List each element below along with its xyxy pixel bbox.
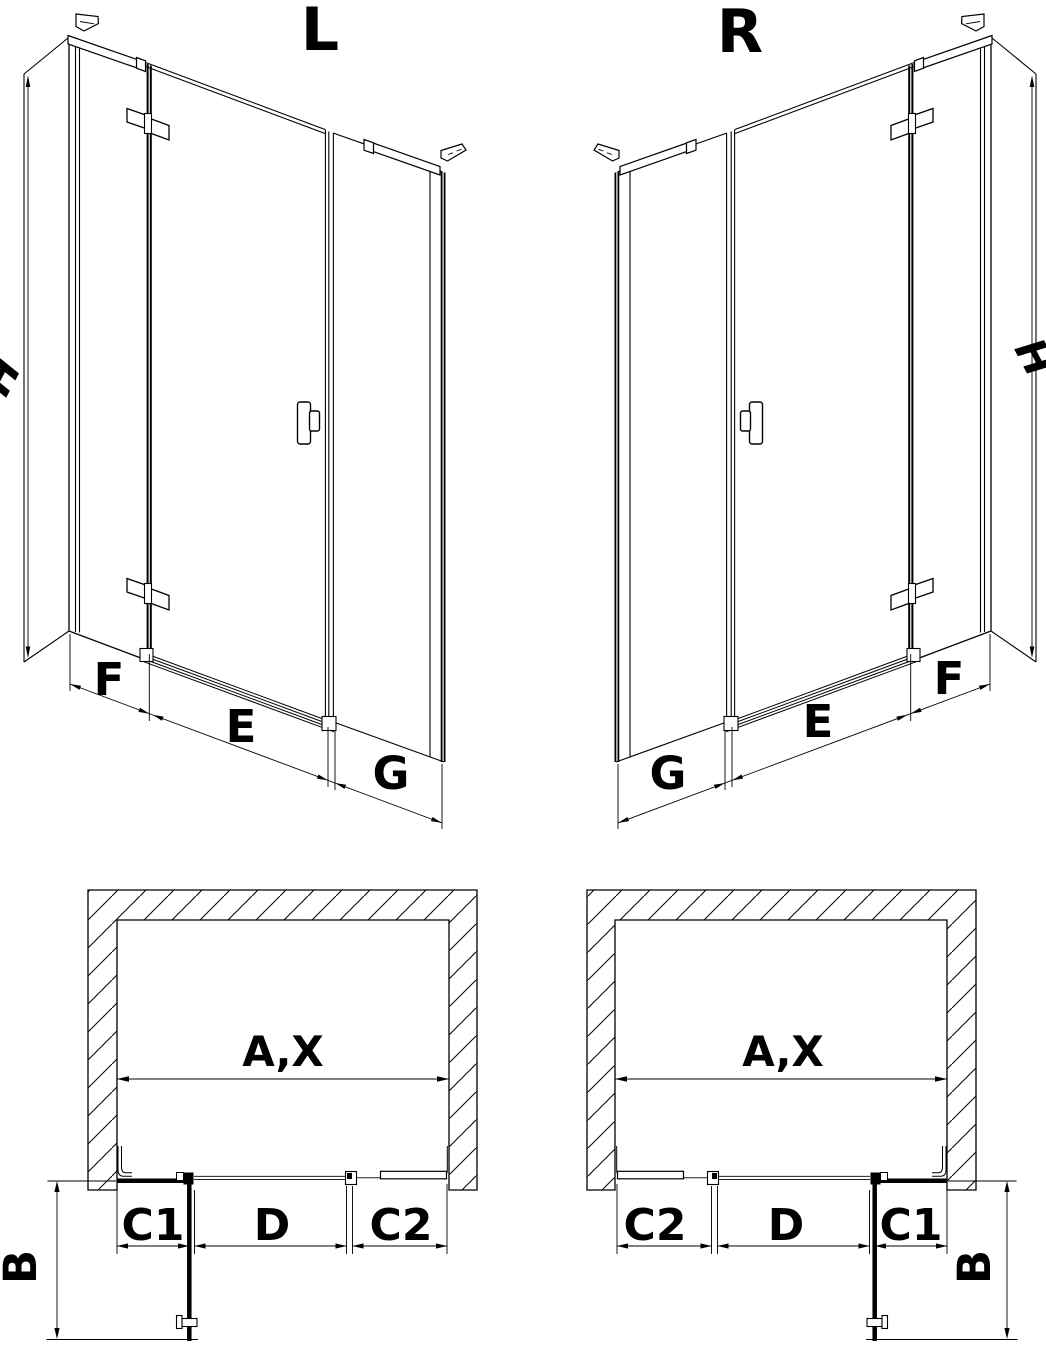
left-elevation-drawing: L H F E G xyxy=(0,0,466,829)
variant-label-right: R xyxy=(717,0,763,67)
plan-label-fixed2-left: C2 xyxy=(370,1200,433,1251)
dim-label-fixed-panel-left: F xyxy=(94,653,125,706)
right-plan-drawing: A,X C2 D C1 B xyxy=(587,890,1018,1341)
plan-label-depth-left: B xyxy=(0,1250,47,1284)
variant-label-left: L xyxy=(301,0,339,65)
plan-label-door-opening-right: D xyxy=(768,1200,805,1251)
right-elevation-drawing: R H F E G xyxy=(594,0,1046,829)
plan-label-door-opening-left: D xyxy=(254,1200,291,1251)
dim-label-side-panel-left: G xyxy=(373,747,410,800)
plan-label-opening-width-right: A,X xyxy=(742,1027,824,1076)
technical-drawing-page: L H F E G R H F E G A,X C1 D C2 B A,X C2… xyxy=(0,0,1046,1350)
plan-label-fixed1-right: C1 xyxy=(880,1200,943,1251)
dim-label-height-right: H xyxy=(1005,330,1046,384)
dim-label-door-right: E xyxy=(803,695,834,748)
dim-label-height-left: H xyxy=(0,349,31,403)
dim-label-fixed-panel-right: F xyxy=(934,652,965,705)
plan-label-opening-width-left: A,X xyxy=(242,1027,324,1076)
plan-label-fixed2-right: C2 xyxy=(624,1200,687,1251)
plan-label-fixed1-left: C1 xyxy=(122,1200,185,1251)
plan-label-depth-right: B xyxy=(948,1250,1001,1284)
dim-label-door-left: E xyxy=(226,700,257,753)
left-plan-drawing: A,X C1 D C2 B xyxy=(0,890,477,1341)
shower-door-diagram: L H F E G R H F E G A,X C1 D C2 B A,X C2… xyxy=(0,0,1046,1350)
dim-label-side-panel-right: G xyxy=(650,747,687,800)
